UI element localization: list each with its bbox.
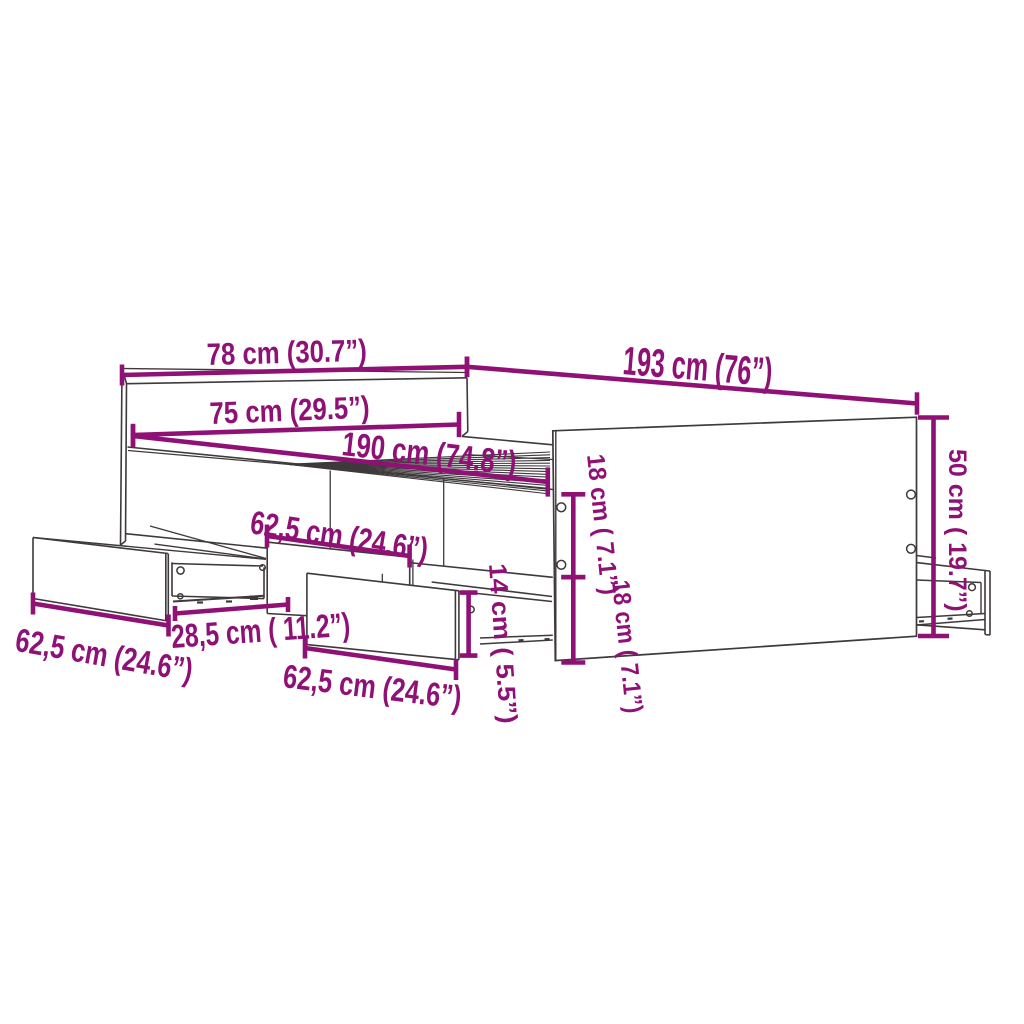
svg-text:50 cm ( 19.7”): 50 cm ( 19.7”) [943, 449, 971, 612]
svg-text:78 cm (30.7”): 78 cm (30.7”) [206, 334, 367, 373]
